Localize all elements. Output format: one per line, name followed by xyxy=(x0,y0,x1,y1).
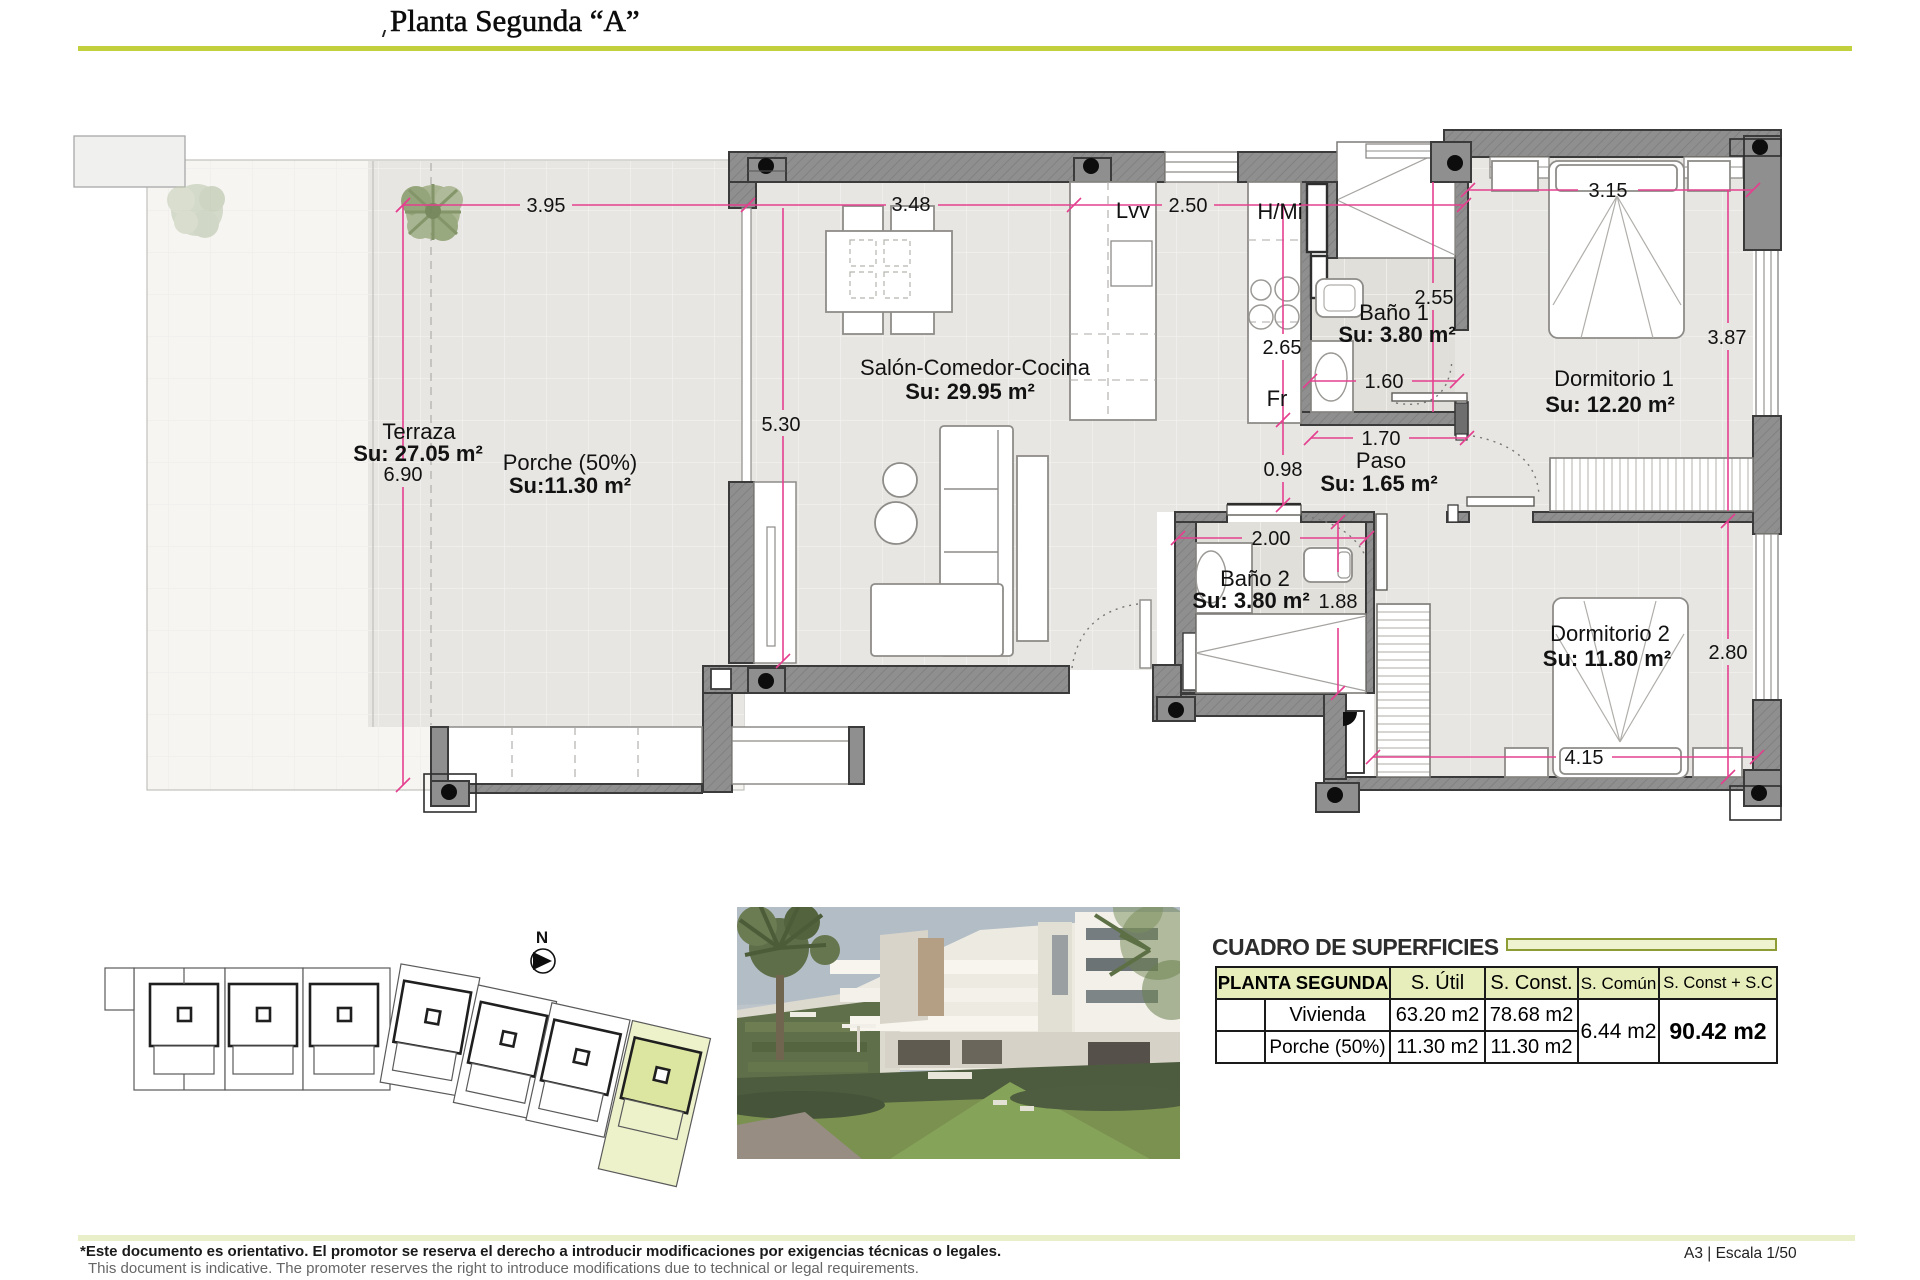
svg-text:2.65: 2.65 xyxy=(1263,337,1302,359)
svg-text:3.87: 3.87 xyxy=(1708,327,1747,349)
svg-text:1.88: 1.88 xyxy=(1319,591,1358,613)
svg-text:Su: 1.65 m²: Su: 1.65 m² xyxy=(1320,471,1437,496)
svg-text:Su: 29.95 m²: Su: 29.95 m² xyxy=(905,379,1035,404)
svg-text:3.15: 3.15 xyxy=(1589,180,1628,202)
svg-text:3.48: 3.48 xyxy=(892,194,931,216)
svg-text:Dormitorio 2: Dormitorio 2 xyxy=(1550,621,1670,646)
svg-text:Paso: Paso xyxy=(1356,448,1406,473)
svg-text:1.60: 1.60 xyxy=(1365,371,1404,393)
svg-text:Su: 3.80 m²: Su: 3.80 m² xyxy=(1338,322,1455,347)
svg-text:Su: 3.80 m²: Su: 3.80 m² xyxy=(1192,588,1309,613)
svg-text:6.90: 6.90 xyxy=(384,464,423,486)
svg-text:Dormitorio 1: Dormitorio 1 xyxy=(1554,366,1674,391)
svg-text:Su: 12.20 m²: Su: 12.20 m² xyxy=(1545,392,1675,417)
svg-text:2.50: 2.50 xyxy=(1169,195,1208,217)
svg-text:Lvv: Lvv xyxy=(1116,198,1150,223)
svg-text:H/Mi: H/Mi xyxy=(1257,199,1302,224)
svg-text:Su: 11.80 m²: Su: 11.80 m² xyxy=(1543,646,1671,671)
svg-text:Su: 27.05 m²: Su: 27.05 m² xyxy=(353,441,483,466)
svg-text:Porche (50%): Porche (50%) xyxy=(503,450,638,475)
svg-text:0.98: 0.98 xyxy=(1264,459,1303,481)
svg-text:1.70: 1.70 xyxy=(1362,428,1401,450)
svg-text:N: N xyxy=(536,928,548,947)
svg-text:Su:11.30 m²: Su:11.30 m² xyxy=(509,473,631,498)
svg-text:Fr: Fr xyxy=(1267,386,1288,411)
svg-text:2.80: 2.80 xyxy=(1709,642,1748,664)
svg-text:Salón-Comedor-Cocina: Salón-Comedor-Cocina xyxy=(860,355,1091,380)
svg-text:3.95: 3.95 xyxy=(527,195,566,217)
svg-text:5.30: 5.30 xyxy=(762,414,801,436)
svg-text:2.00: 2.00 xyxy=(1252,528,1291,550)
svg-text:4.15: 4.15 xyxy=(1565,747,1604,769)
